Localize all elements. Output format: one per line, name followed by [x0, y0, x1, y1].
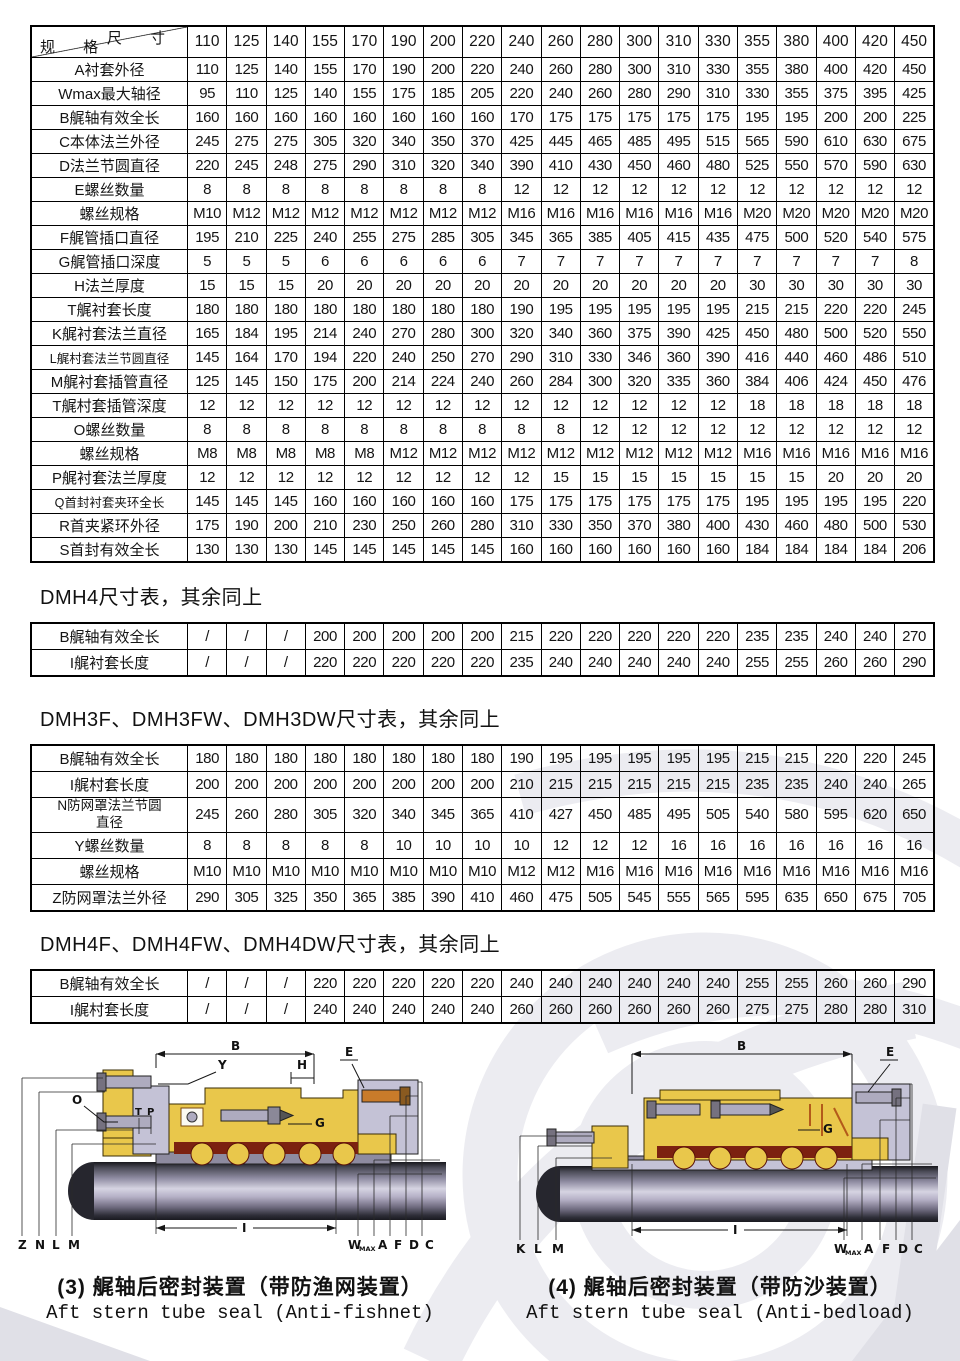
dim-cell: M10: [423, 858, 462, 884]
dim-cell: 275: [305, 154, 344, 178]
dim-cell: 180: [462, 745, 501, 772]
dim-cell: 125: [227, 58, 266, 82]
dim-cell: M12: [462, 442, 501, 466]
dim-cell: 390: [659, 322, 698, 346]
dim-cell: 200: [384, 623, 423, 650]
dim-cell: 195: [777, 490, 816, 514]
dim-cell: 16: [737, 832, 776, 858]
dim-cell: 160: [462, 106, 501, 130]
dim-cell: 260: [541, 996, 580, 1023]
dim-cell: 175: [541, 490, 580, 514]
dim-cell: 425: [698, 322, 737, 346]
dim-cell: 280: [580, 58, 619, 82]
dim-cell: 220: [895, 490, 934, 514]
dim-cell: 270: [895, 623, 934, 650]
dim-cell: 12: [895, 418, 934, 442]
dim-cell: M10: [384, 858, 423, 884]
dim-cell: 110: [188, 58, 227, 82]
size-column-header: 125: [227, 26, 266, 58]
dim-cell: 270: [384, 322, 423, 346]
dim-cell: 215: [541, 772, 580, 798]
dim-cell: 175: [659, 490, 698, 514]
dim-cell: 220: [345, 650, 384, 677]
dim-cell: 206: [895, 538, 934, 563]
dim-cell: 224: [423, 370, 462, 394]
dim-cell: 12: [266, 466, 305, 490]
dim-label-a: A: [864, 1242, 874, 1256]
dim-cell: 500: [777, 226, 816, 250]
dim-cell: 346: [620, 346, 659, 370]
dim-cell: 555: [659, 884, 698, 911]
dimension-row: B艉轴有效全长180180180180180180180180190195195…: [31, 745, 934, 772]
size-column-header: 220: [462, 26, 501, 58]
dim-cell: /: [188, 970, 227, 997]
dim-cell: 12: [502, 394, 541, 418]
dim-cell: 175: [541, 106, 580, 130]
seal-lips: [657, 1146, 852, 1169]
dim-cell: /: [227, 970, 266, 997]
dim-cell: 12: [737, 418, 776, 442]
dim-cell: 345: [502, 226, 541, 250]
dim-cell: 12: [620, 178, 659, 202]
row-label: N防网罩法兰节圆 直径: [31, 798, 188, 833]
dim-cell: 160: [188, 106, 227, 130]
dim-cell: 175: [659, 106, 698, 130]
dim-cell: 8: [305, 832, 344, 858]
dim-cell: 12: [541, 178, 580, 202]
dim-cell: M12: [698, 442, 737, 466]
dim-cell: 160: [345, 490, 384, 514]
dim-cell: 410: [502, 798, 541, 833]
dim-cell: 300: [620, 58, 659, 82]
dim-cell: 170: [502, 106, 541, 130]
dim-cell: 290: [502, 346, 541, 370]
dim-cell: 8: [462, 178, 501, 202]
dim-cell: 8: [541, 418, 580, 442]
size-column-header: 260: [541, 26, 580, 58]
dim-cell: 320: [502, 322, 541, 346]
dim-cell: 12: [188, 466, 227, 490]
dim-cell: 240: [620, 970, 659, 997]
dim-label-h: H: [297, 1058, 307, 1072]
dim-cell: 175: [620, 490, 659, 514]
caption-zh: (4) 艉轴后密封装置（带防沙装置）: [480, 1271, 960, 1301]
dimension-row: P艉衬套法兰厚度12121212121212121215151515151515…: [31, 466, 934, 490]
size-column-header: 140: [266, 26, 305, 58]
dim-cell: M16: [698, 202, 737, 226]
dim-cell: 20: [502, 274, 541, 298]
dim-cell: 7: [737, 250, 776, 274]
dim-cell: 195: [737, 106, 776, 130]
dim-cell: 160: [502, 538, 541, 563]
dim-cell: 390: [502, 154, 541, 178]
dim-label-g: G: [315, 1116, 325, 1130]
dim-cell: 255: [777, 970, 816, 997]
dim-cell: 180: [423, 298, 462, 322]
dim-cell: 340: [384, 798, 423, 833]
dim-cell: 160: [384, 106, 423, 130]
dim-cell: 330: [580, 346, 619, 370]
main-dimension-table: 尺 寸规 格1101251401551701902002202402602803…: [30, 25, 935, 563]
dim-cell: 12: [620, 832, 659, 858]
dim-cell: /: [227, 996, 266, 1023]
dim-cell: 675: [855, 884, 894, 911]
dimension-row: N防网罩法兰节圆 直径24526028030532034034536541042…: [31, 798, 934, 833]
dim-cell: 18: [895, 394, 934, 418]
dim-cell: M20: [816, 202, 855, 226]
dim-cell: 435: [698, 226, 737, 250]
dim-cell: 255: [737, 970, 776, 997]
dmh4-dimension-table: B艉轴有效全长///200200200200200215220220220220…: [30, 622, 935, 677]
dim-label-z: Z: [18, 1238, 27, 1252]
dim-cell: 260: [816, 970, 855, 997]
dim-cell: 15: [777, 466, 816, 490]
dim-cell: M16: [816, 858, 855, 884]
dim-cell: 220: [188, 154, 227, 178]
dim-cell: 175: [580, 106, 619, 130]
dim-cell: 12: [659, 394, 698, 418]
dim-label-y: Y: [217, 1058, 227, 1072]
dim-cell: 215: [698, 772, 737, 798]
dim-cell: 400: [816, 58, 855, 82]
dim-cell: 200: [345, 370, 384, 394]
row-label: O螺丝数量: [31, 418, 188, 442]
corner-spec-label: 规 格: [40, 36, 110, 57]
dim-cell: M10: [305, 858, 344, 884]
dim-cell: 330: [541, 514, 580, 538]
dim-cell: 200: [305, 623, 344, 650]
dim-cell: 7: [580, 250, 619, 274]
diagram-anti-fishnet: B Y H E O T P G Z N L M I W MAX A F: [6, 1038, 468, 1269]
dim-cell: 405: [620, 226, 659, 250]
dim-cell: 485: [620, 130, 659, 154]
dim-cell: 575: [895, 226, 934, 250]
dim-cell: 290: [188, 884, 227, 911]
dim-cell: 275: [227, 130, 266, 154]
dimension-row: T艉衬套长度1801801801801801801801801901951951…: [31, 298, 934, 322]
dim-cell: 245: [227, 154, 266, 178]
dim-cell: 350: [305, 884, 344, 911]
dim-cell: M10: [462, 858, 501, 884]
dim-cell: 12: [580, 418, 619, 442]
dim-label-b: B: [737, 1039, 746, 1053]
dim-cell: 160: [462, 490, 501, 514]
dim-cell: 425: [502, 130, 541, 154]
row-label: 螺丝规格: [31, 858, 188, 884]
dim-cell: 635: [777, 884, 816, 911]
dim-cell: 445: [541, 130, 580, 154]
dim-cell: 180: [423, 745, 462, 772]
dim-cell: 350: [580, 514, 619, 538]
dimension-row: G艉管插口深度5556666677777777778: [31, 250, 934, 274]
dim-cell: 200: [266, 514, 305, 538]
dim-cell: 8: [384, 418, 423, 442]
dim-cell: 310: [502, 514, 541, 538]
dim-cell: 15: [659, 466, 698, 490]
dim-label-c: C: [425, 1238, 434, 1252]
dim-cell: 175: [384, 82, 423, 106]
dimension-row: Z防网罩法兰外径29030532535036538539041046047550…: [31, 884, 934, 911]
dim-cell: 16: [777, 832, 816, 858]
dim-cell: 565: [698, 884, 737, 911]
dim-cell: 195: [816, 490, 855, 514]
dim-label-m: M: [68, 1238, 80, 1252]
dim-cell: 525: [737, 154, 776, 178]
dim-cell: 220: [698, 623, 737, 650]
dim-cell: M8: [188, 442, 227, 466]
dim-cell: 145: [227, 490, 266, 514]
dim-cell: 240: [659, 970, 698, 997]
dim-cell: 280: [816, 996, 855, 1023]
corner-size-label: 尺 寸: [107, 27, 177, 48]
dim-cell: 440: [777, 346, 816, 370]
dmh4f-dimension-table: B艉轴有效全长///220220220220220240240240240240…: [30, 969, 935, 1024]
dim-cell: 260: [502, 370, 541, 394]
dimension-row: B艉轴有效全长///220220220220220240240240240240…: [31, 970, 934, 997]
dim-cell: M16: [659, 202, 698, 226]
row-label: I艉村套长度: [31, 996, 188, 1023]
dim-cell: 175: [580, 490, 619, 514]
dim-cell: 12: [423, 466, 462, 490]
dim-cell: 12: [188, 394, 227, 418]
dim-cell: 215: [777, 298, 816, 322]
dim-cell: 210: [305, 514, 344, 538]
dim-cell: 280: [423, 322, 462, 346]
dim-cell: /: [227, 623, 266, 650]
dim-cell: 180: [462, 298, 501, 322]
dim-cell: 195: [777, 106, 816, 130]
dim-label-l: L: [52, 1238, 60, 1252]
dim-cell: M20: [777, 202, 816, 226]
dim-cell: 335: [659, 370, 698, 394]
dimension-row: I艉村套长度2002002002002002002002002102152152…: [31, 772, 934, 798]
dim-cell: M12: [227, 202, 266, 226]
dim-cell: /: [266, 996, 305, 1023]
dim-cell: 240: [698, 970, 737, 997]
size-column-header: 420: [855, 26, 894, 58]
dim-cell: 170: [345, 58, 384, 82]
dim-label-f: F: [882, 1242, 890, 1256]
dim-cell: 260: [855, 650, 894, 677]
dim-cell: 200: [855, 106, 894, 130]
dim-cell: 385: [384, 884, 423, 911]
dim-cell: 416: [737, 346, 776, 370]
dim-cell: M16: [777, 858, 816, 884]
dim-cell: 145: [227, 370, 266, 394]
dim-cell: 500: [855, 514, 894, 538]
dim-cell: 30: [855, 274, 894, 298]
dim-cell: 20: [620, 274, 659, 298]
dim-cell: 240: [541, 650, 580, 677]
dim-label-g: G: [823, 1122, 833, 1136]
dim-cell: 8: [188, 178, 227, 202]
size-column-header: 355: [737, 26, 776, 58]
dim-cell: 240: [502, 58, 541, 82]
row-label: T艉村套插管深度: [31, 394, 188, 418]
dim-cell: 200: [305, 772, 344, 798]
dim-cell: /: [266, 623, 305, 650]
dim-cell: 225: [266, 226, 305, 250]
dim-cell: 384: [737, 370, 776, 394]
dim-cell: 8: [895, 250, 934, 274]
dim-cell: 184: [227, 322, 266, 346]
dim-cell: 240: [541, 82, 580, 106]
dim-cell: 20: [698, 274, 737, 298]
dim-cell: 12: [659, 418, 698, 442]
dim-cell: 290: [345, 154, 384, 178]
dim-cell: 12: [462, 466, 501, 490]
dim-cell: M16: [895, 858, 934, 884]
dim-cell: 20: [345, 274, 384, 298]
dim-cell: 290: [659, 82, 698, 106]
dim-cell: 5: [227, 250, 266, 274]
dim-cell: 12: [266, 394, 305, 418]
dim-cell: 8: [423, 418, 462, 442]
dim-cell: 145: [384, 538, 423, 563]
dim-cell: 16: [855, 832, 894, 858]
dim-cell: M12: [502, 442, 541, 466]
dim-cell: M12: [305, 202, 344, 226]
dim-cell: 565: [737, 130, 776, 154]
row-label: A衬套外径: [31, 58, 188, 82]
dim-cell: 95: [188, 82, 227, 106]
dim-cell: 190: [502, 298, 541, 322]
dim-cell: 260: [227, 798, 266, 833]
dim-cell: 6: [305, 250, 344, 274]
dim-cell: 260: [659, 996, 698, 1023]
row-label: Z防网罩法兰外径: [31, 884, 188, 911]
dim-cell: 6: [345, 250, 384, 274]
row-label: Y螺丝数量: [31, 832, 188, 858]
dim-cell: 480: [698, 154, 737, 178]
dim-cell: 245: [188, 130, 227, 154]
dim-cell: 210: [227, 226, 266, 250]
dim-cell: 365: [541, 226, 580, 250]
dim-cell: 7: [620, 250, 659, 274]
propeller-shaft: [536, 1166, 938, 1222]
dim-cell: 7: [502, 250, 541, 274]
dim-cell: 145: [423, 538, 462, 563]
dim-cell: 270: [462, 346, 501, 370]
dim-cell: 200: [423, 772, 462, 798]
dimension-row: B艉轴有效全长160160160160160160160160170175175…: [31, 106, 934, 130]
dim-cell: 476: [895, 370, 934, 394]
dim-cell: 160: [620, 538, 659, 563]
row-label: M艉衬套插管直径: [31, 370, 188, 394]
dim-cell: 180: [305, 745, 344, 772]
section-heading-dmh3f: DMH3F、DMH3FW、DMH3DW尺寸表，其余同上: [40, 703, 960, 732]
dim-cell: 8: [305, 178, 344, 202]
dim-cell: 220: [384, 650, 423, 677]
dim-cell: 8: [462, 418, 501, 442]
dim-cell: M12: [620, 442, 659, 466]
size-spec-corner-cell: 尺 寸规 格: [31, 26, 188, 58]
dim-cell: 18: [737, 394, 776, 418]
dim-cell: 20: [305, 274, 344, 298]
dim-cell: M8: [227, 442, 266, 466]
dim-label-i: I: [733, 1223, 737, 1237]
dim-cell: 595: [816, 798, 855, 833]
dim-cell: 15: [266, 274, 305, 298]
caption-en: Aft stern tube seal (Anti-fishnet): [0, 1302, 480, 1324]
dim-cell: 240: [620, 650, 659, 677]
dim-cell: M12: [266, 202, 305, 226]
row-label: D法兰节圆直径: [31, 154, 188, 178]
dim-cell: 475: [737, 226, 776, 250]
dim-cell: 12: [698, 418, 737, 442]
dim-cell: 200: [345, 623, 384, 650]
dim-cell: 194: [305, 346, 344, 370]
dim-label-n: N: [35, 1238, 45, 1252]
dimension-row: L艉村套法兰节圆直径145164170194220240250270290310…: [31, 346, 934, 370]
dimension-row: Wmax最大轴径95110125140155175185205220240260…: [31, 82, 934, 106]
dim-cell: 320: [345, 130, 384, 154]
dim-cell: 12: [541, 832, 580, 858]
dim-cell: 255: [737, 650, 776, 677]
dimension-row: F艉管插口直径195210225240255275285305345365385…: [31, 226, 934, 250]
dim-cell: 240: [305, 996, 344, 1023]
dim-cell: 6: [384, 250, 423, 274]
dim-cell: 180: [345, 745, 384, 772]
dim-cell: 215: [502, 623, 541, 650]
dim-cell: 460: [816, 346, 855, 370]
dim-cell: 200: [462, 772, 501, 798]
dim-cell: 375: [816, 82, 855, 106]
row-label: B艉轴有效全长: [31, 970, 188, 997]
row-label: L艉村套法兰节圆直径: [31, 346, 188, 370]
dim-cell: 8: [266, 832, 305, 858]
dim-cell: 255: [345, 226, 384, 250]
dim-cell: 675: [895, 130, 934, 154]
dim-cell: M12: [384, 202, 423, 226]
dim-label-a: A: [378, 1238, 388, 1252]
dim-cell: 130: [227, 538, 266, 563]
dim-cell: 165: [188, 322, 227, 346]
row-label: 螺丝规格: [31, 442, 188, 466]
dim-cell: M10: [188, 202, 227, 226]
dim-cell: 350: [423, 130, 462, 154]
dim-cell: 210: [502, 772, 541, 798]
dim-cell: 360: [659, 346, 698, 370]
dim-cell: 20: [580, 274, 619, 298]
dim-cell: 240: [816, 623, 855, 650]
row-label: B艉轴有效全长: [31, 106, 188, 130]
dim-cell: 240: [345, 996, 384, 1023]
dim-cell: 215: [737, 745, 776, 772]
dim-cell: 180: [384, 298, 423, 322]
dim-cell: 570: [816, 154, 855, 178]
dim-cell: 240: [659, 650, 698, 677]
dim-cell: 12: [580, 832, 619, 858]
dim-cell: 160: [305, 106, 344, 130]
caption-anti-bedload: (4) 艉轴后密封装置（带防沙装置） Aft stern tube seal (…: [480, 1271, 960, 1324]
dim-cell: 30: [737, 274, 776, 298]
dimension-row: H法兰厚度15151520202020202020202020203030303…: [31, 274, 934, 298]
dim-cell: 240: [462, 996, 501, 1023]
row-label: Wmax最大轴径: [31, 82, 188, 106]
dim-cell: 305: [305, 130, 344, 154]
dim-cell: 195: [698, 745, 737, 772]
dim-cell: 6: [423, 250, 462, 274]
dim-cell: 16: [698, 832, 737, 858]
dim-cell: 260: [855, 970, 894, 997]
dim-cell: 20: [384, 274, 423, 298]
dim-cell: 650: [816, 884, 855, 911]
dim-cell: 180: [227, 745, 266, 772]
dim-cell: 8: [227, 832, 266, 858]
dim-cell: 390: [423, 884, 462, 911]
dim-cell: 250: [423, 346, 462, 370]
